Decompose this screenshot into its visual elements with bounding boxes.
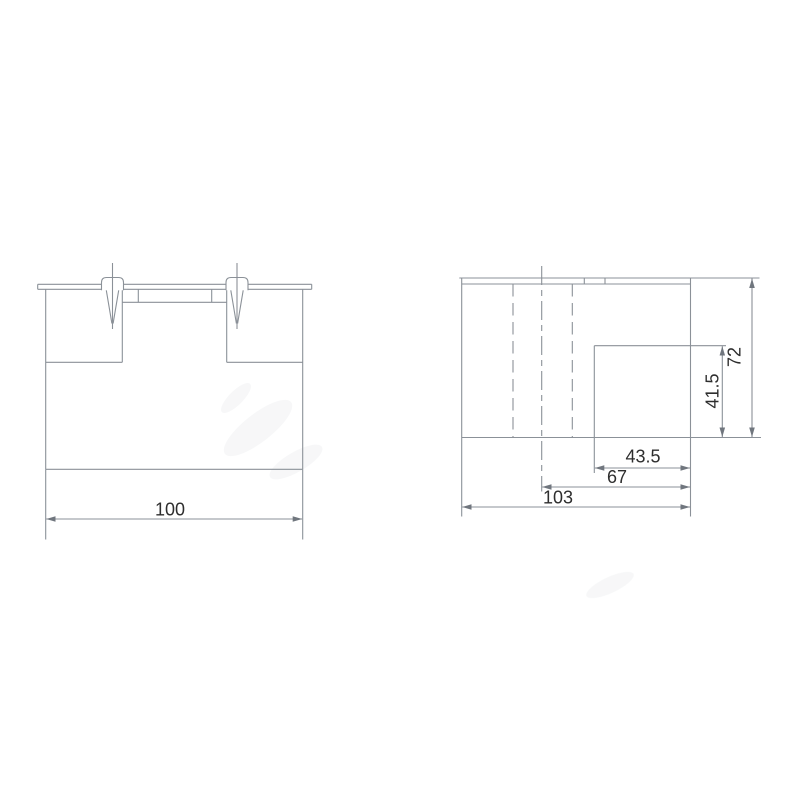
dimension-label-height: 72 <box>724 347 744 367</box>
clip-pin-right <box>226 263 248 329</box>
pin-needle-right-edge <box>238 290 244 323</box>
dimension-depth-103: 103 <box>462 488 690 508</box>
dimension-label-depth: 103 <box>543 488 573 508</box>
dimension-recess-width-43-5: 43.5 <box>595 447 690 469</box>
dimension-label-recess-height: 41.5 <box>702 373 722 408</box>
dimension-label-offset: 67 <box>607 467 627 487</box>
dimension-label-recess-width: 43.5 <box>625 447 660 467</box>
clip-pin-left <box>102 263 124 329</box>
dimension-label-width: 100 <box>155 500 185 520</box>
front-center-recess <box>122 289 226 302</box>
scan-artifact <box>265 438 327 485</box>
dimension-width-100: 100 <box>46 500 302 520</box>
side-view: 43.5 67 103 41.5 72 <box>459 266 761 517</box>
dimension-offset-67: 67 <box>542 467 690 487</box>
scan-artifact <box>217 379 255 417</box>
pin-needle-right-edge <box>113 290 119 323</box>
side-hidden-edges <box>513 266 572 492</box>
side-body-outline <box>459 278 761 438</box>
front-flange <box>38 284 312 289</box>
front-notches <box>46 289 303 362</box>
front-view: 100 <box>38 263 312 540</box>
dimension-recess-height-41-5: 41.5 <box>702 346 722 437</box>
pin-needle-left-edge <box>231 290 237 323</box>
scan-artifacts <box>216 379 637 603</box>
pin-needle-left-edge <box>106 290 112 323</box>
front-body-outline <box>46 289 303 469</box>
scan-artifact <box>583 567 637 603</box>
technical-drawing: 100 43.5 <box>0 0 800 800</box>
dimension-height-72: 72 <box>724 279 752 438</box>
